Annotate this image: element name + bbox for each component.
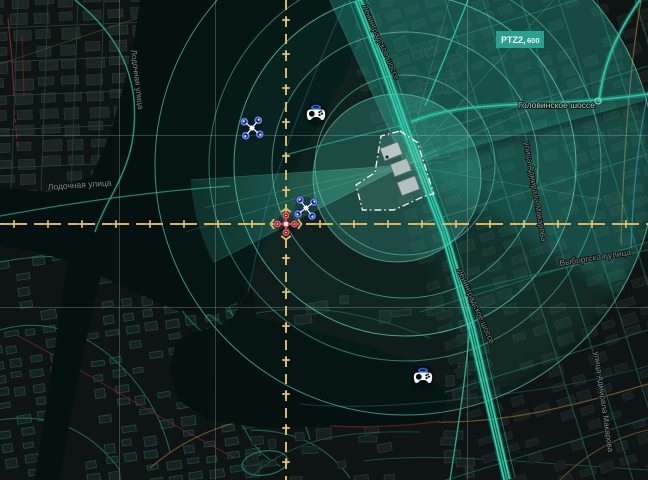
svg-text:600: 600 [527,36,540,45]
svg-text:Головинское шоссе: Головинское шоссе [518,100,595,110]
svg-text:PTZ2,: PTZ2, [501,35,526,45]
